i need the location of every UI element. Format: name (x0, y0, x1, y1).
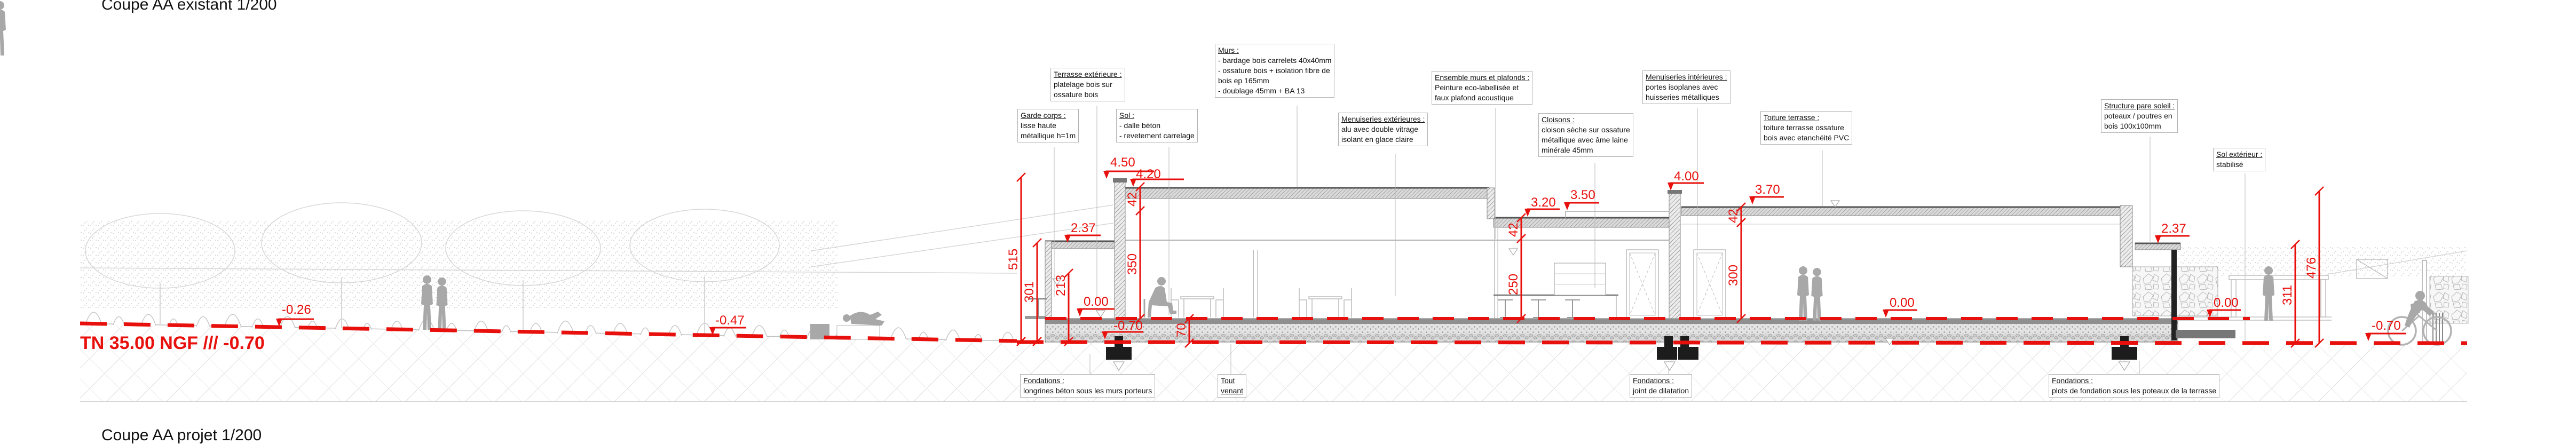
person-silhouette (1797, 266, 1809, 321)
dim-300: 300 (1726, 265, 1741, 286)
dim-476: 476 (2304, 257, 2319, 279)
label-title: Terrasse extérieure : (1054, 69, 1122, 80)
label-structure-pare-soleil: Structure pare soleil : poteaux / poutre… (2101, 99, 2178, 133)
label-title: Fondations : (2052, 376, 2216, 386)
dim-0-26: -0.26 (282, 303, 311, 318)
dim-4-00: 4.00 (1674, 169, 1699, 184)
dim-42-left: 42 (1125, 192, 1140, 207)
label-fondations-plots: Fondations : plots de fondation sous les… (2049, 374, 2219, 398)
dining-furniture (1171, 288, 1352, 318)
dim-0-70-right: -0.70 (2372, 319, 2401, 334)
dim-2-37-left: 2.37 (1071, 221, 1096, 236)
dim-0-00-mid: 0.00 (1890, 296, 1915, 311)
dim-301: 301 (1022, 281, 1037, 303)
label-title: Structure pare soleil : (2104, 101, 2175, 111)
person-lying-silhouette (810, 312, 884, 339)
label-title: Cloisons : (1542, 115, 1630, 125)
label-menuiseries-interieures: Menuiseries intérieures : portes isoplan… (1642, 70, 1730, 104)
dim-0-47: -0.47 (715, 313, 745, 328)
dim-70: 70 (1174, 323, 1189, 337)
label-murs: Murs : - bardage bois carrelets 40x40mm … (1215, 44, 1334, 98)
label-title: Fondations : (1023, 376, 1152, 386)
label-cloisons: Cloisons : cloison sèche sur ossature mé… (1538, 113, 1633, 157)
label-title: Sol : (1119, 110, 1195, 121)
label-fondations-joint: Fondations : joint de dilatation (1630, 374, 1692, 398)
label-ensemble-murs-plafonds: Ensemble murs et plafonds : Peinture eco… (1432, 71, 1532, 105)
label-tout-venant: Tout venant (1218, 374, 1246, 398)
person-seated-silhouette (1144, 277, 1176, 318)
architectural-section-sheet: Coupe AA existant 1/200 Coupe AA projet … (0, 0, 2576, 444)
title-coupe-projet: Coupe AA projet 1/200 (101, 426, 262, 444)
label-title: Garde corps : (1021, 110, 1076, 121)
dim-213: 213 (1054, 275, 1069, 296)
label-sol-exterieur: Sol extérieur : stabilisé (2213, 148, 2265, 171)
dim-250: 250 (1506, 274, 1521, 295)
label-menuiseries-exterieures: Menuiseries extérieures : alu avec doubl… (1338, 113, 1428, 146)
dim-0-00-left: 0.00 (1084, 295, 1109, 310)
dim-515: 515 (1006, 249, 1021, 270)
label-title: Fondations : (1633, 376, 1689, 386)
label-title: Menuiseries extérieures : (1341, 114, 1425, 124)
label-title: Sol extérieur : (2216, 149, 2262, 160)
label-toiture-terrasse: Toiture terrasse : toiture terrasse ossa… (1760, 111, 1852, 145)
dim-4-50: 4.50 (1110, 155, 1135, 170)
dim-350: 350 (1125, 253, 1140, 275)
terrain-level-label: TN 35.00 NGF /// -0.70 (80, 333, 265, 354)
dim-311: 311 (2280, 285, 2295, 305)
dim-3-70: 3.70 (1755, 183, 1780, 197)
person-silhouette (1811, 268, 1822, 321)
label-title: Menuiseries intérieures : (1646, 72, 1727, 82)
dim-2-37-right: 2.37 (2161, 221, 2186, 236)
label-fondations-longrines: Fondations : longrines béton sous les mu… (1020, 374, 1155, 398)
label-garde-corps: Garde corps : lisse haute métallique h=1… (1017, 109, 1079, 142)
label-title: Toiture terrasse : (1764, 113, 1849, 123)
dim-0-00-right: 0.00 (2214, 296, 2239, 311)
dim-3-50: 3.50 (1570, 188, 1595, 203)
label-terrasse-exterieure: Terrasse extérieure : platelage bois sur… (1050, 68, 1125, 101)
title-coupe-existant: Coupe AA existant 1/200 (101, 0, 277, 14)
dim-42-mid: 42 (1506, 223, 1521, 237)
dim-0-70-left: -0.70 (1113, 319, 1143, 334)
label-title: Murs : (1218, 45, 1331, 55)
label-title: Ensemble murs et plafonds : (1435, 73, 1529, 83)
dim-4-20: 4.20 (1136, 167, 1161, 182)
dim-3-20: 3.20 (1531, 195, 1556, 210)
dim-42-right: 42 (1726, 209, 1741, 223)
label-sol: Sol : - dalle béton - revetement carrela… (1116, 109, 1198, 142)
